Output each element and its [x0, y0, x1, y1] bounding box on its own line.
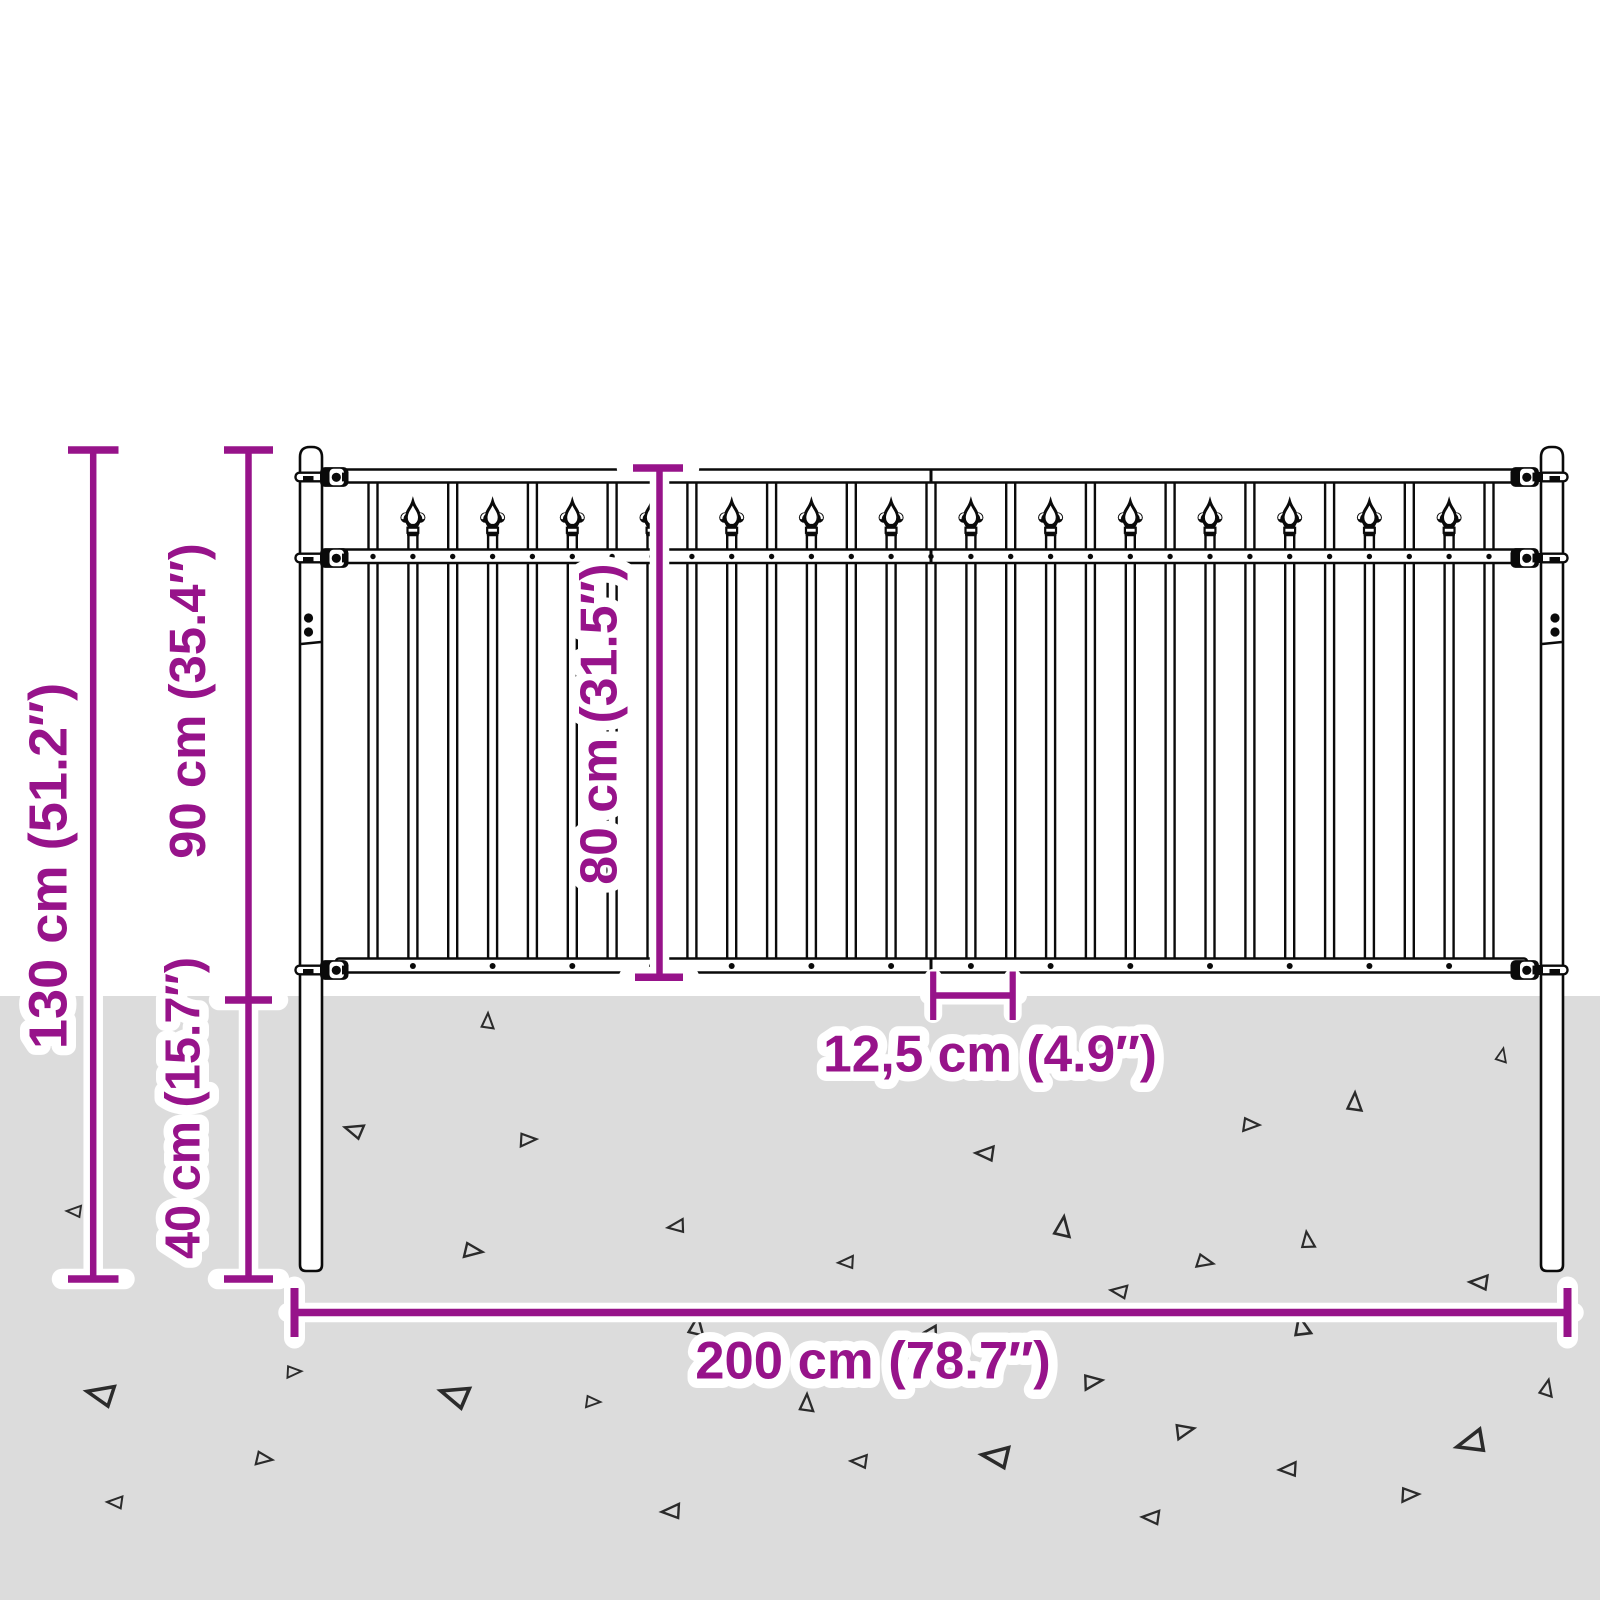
svg-text:80 cm (31.5″): 80 cm (31.5″)	[570, 563, 628, 884]
svg-text:40 cm (15.7″): 40 cm (15.7″)	[157, 957, 211, 1259]
svg-text:130 cm (51.2″): 130 cm (51.2″)	[19, 683, 79, 1049]
svg-text:90 cm (35.4″): 90 cm (35.4″)	[159, 543, 216, 859]
svg-text:200 cm (78.7″): 200 cm (78.7″)	[695, 1332, 1051, 1391]
svg-text:12,5 cm (4.9″): 12,5 cm (4.9″)	[823, 1025, 1157, 1083]
